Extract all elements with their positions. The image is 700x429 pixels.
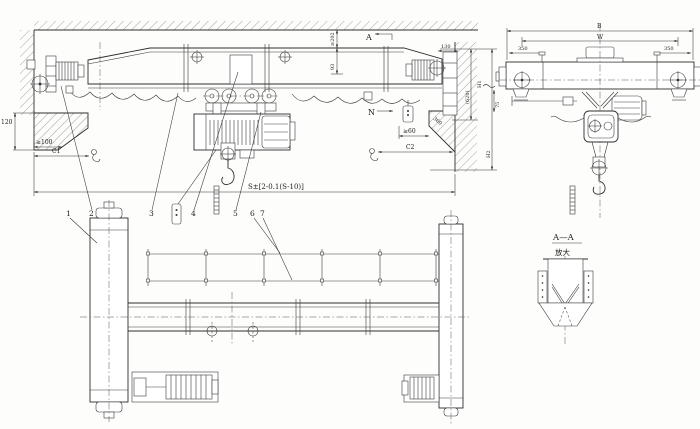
section-detail-aa: A—A 放大 (538, 233, 593, 344)
dim-350-left-label: 350 (518, 46, 528, 52)
railing-posts (147, 249, 438, 286)
dim-min60-label: ≥60 (403, 128, 416, 135)
end-carriage-beam (496, 47, 700, 100)
dim-min60: ≥60 (399, 126, 429, 139)
plan-end-carriage-left (90, 200, 128, 422)
festoon-cable-right (292, 94, 420, 104)
part-number-3: 3 (149, 209, 154, 218)
hook-block-end (590, 157, 608, 194)
dim-ceiling-gap: ≥202 (330, 30, 337, 48)
hook-block-front (220, 143, 236, 184)
section-a-label: A (365, 33, 372, 42)
hoist-trolley-front (172, 89, 295, 224)
dim-350-right: 350 (655, 46, 691, 53)
dim-h2-label: H2 (486, 150, 492, 158)
dim-h1-label: H1 (477, 80, 483, 88)
festoon-hanger (66, 86, 73, 93)
dim-350-right-label: 350 (664, 46, 674, 52)
dim-b-label: B (597, 23, 602, 30)
dim-120: 120 (1, 113, 34, 150)
dim-75-label: 75 (495, 102, 501, 108)
top-bolt (539, 52, 545, 62)
plan-girder (80, 292, 470, 344)
dim-c2-label: C2 (406, 144, 415, 151)
end-truck-right (406, 52, 457, 115)
girder-splices (184, 44, 388, 92)
part-number-6: 6 (250, 209, 255, 218)
ceiling-hatch (34, 21, 478, 30)
end-truck-left (27, 56, 84, 94)
hook-limit-symbol-left (92, 150, 101, 162)
part-number-4: 4 (191, 209, 196, 218)
collector-arm (512, 96, 577, 106)
bottom-weight (539, 303, 592, 326)
dim-ceiling-gap-label: ≥202 (330, 32, 336, 46)
plan-drive-left (132, 372, 218, 402)
part-number-2: 2 (89, 209, 94, 218)
section-note: 放大 (555, 247, 570, 257)
buffer-left (27, 60, 35, 69)
clamp-plate-left (538, 271, 547, 303)
plan-railing (147, 249, 440, 286)
drawing-canvas: A N ≥202 93 120 ≥100 C1 (0, 0, 700, 429)
dim-c1-label: C1 (52, 148, 60, 155)
section-title: A—A (552, 233, 575, 243)
rope-break-symbol-end (570, 186, 575, 214)
plan-trolley-wheels (207, 292, 258, 344)
dim-min100-label: ≥100 (36, 139, 53, 146)
dim-93-label: 93 (330, 64, 336, 70)
section-marker-a: A (365, 33, 392, 42)
rope-guide-wing-left (551, 116, 584, 122)
part-number-7: 7 (260, 209, 265, 218)
part-number-5: 5 (233, 209, 238, 218)
electrical-panel-box (230, 55, 252, 84)
crane-technical-drawing: A N ≥202 93 120 ≥100 C1 (0, 0, 700, 429)
dim-w-label: W (597, 34, 604, 41)
plan-drive-right (402, 375, 439, 402)
festoon-hanger (364, 92, 372, 100)
dim-span-label: S±[2-0.1(S-10)] (248, 183, 304, 191)
dim-120-label: 120 (1, 119, 13, 126)
rope-break-symbol (214, 186, 219, 214)
end-view: B W 350 350 75 (483, 23, 700, 218)
right-corbel (429, 111, 455, 152)
dim-c2: C2 (378, 144, 453, 152)
section-marker-n: N (368, 108, 393, 117)
dim-span: S±[2-0.1(S-10)] (34, 152, 455, 196)
dim-620-label: (620) (464, 91, 471, 104)
front-elevation-view: A N ≥202 93 120 ≥100 C1 (1, 21, 497, 224)
clamp-plate-right (584, 271, 593, 303)
top-bolt (654, 52, 660, 62)
part-number-1: 1 (66, 209, 71, 218)
hook-limit-symbol-right (370, 149, 379, 161)
section-n-label: N (368, 108, 375, 117)
